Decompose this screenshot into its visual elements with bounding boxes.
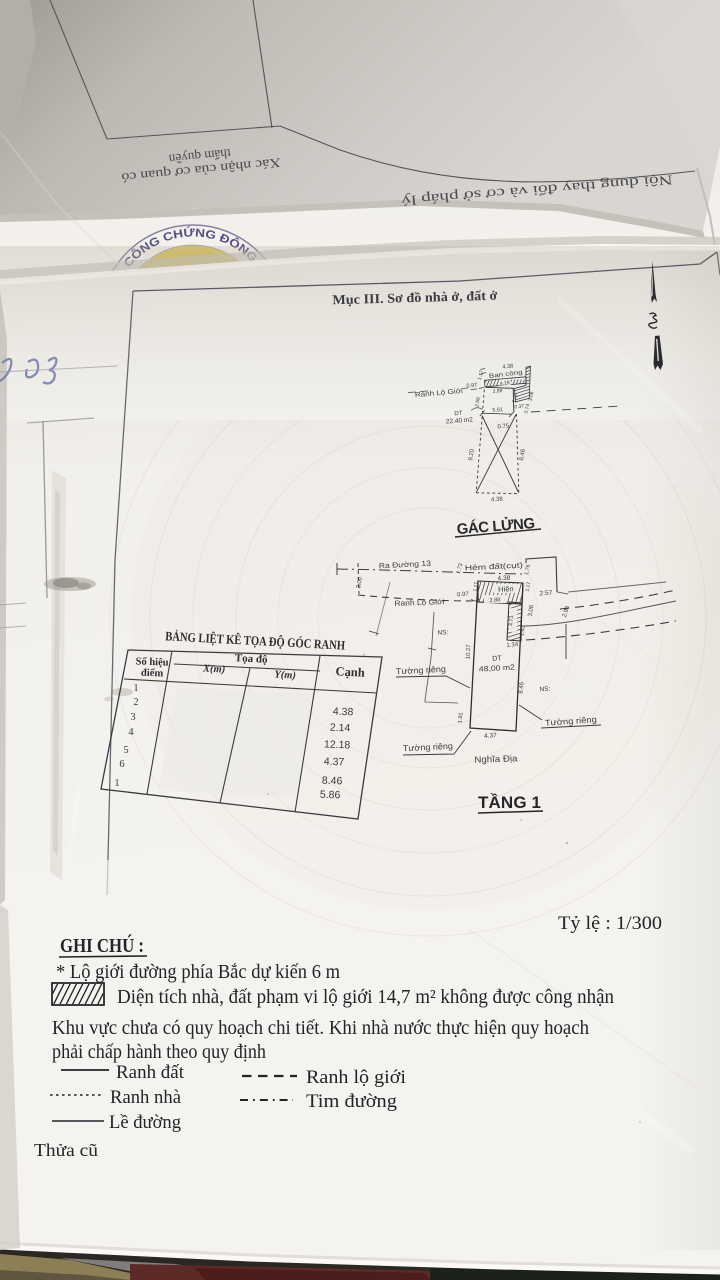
svg-text:Tỷ lệ : 1/300: Tỷ lệ : 1/300	[558, 913, 662, 934]
svg-text:Nghĩa Địa: Nghĩa Địa	[474, 753, 517, 764]
svg-text:2.14: 2.14	[330, 722, 351, 735]
svg-text:4.38: 4.38	[333, 706, 354, 719]
svg-text:Khu vực chưa có quy hoạch chi: Khu vực chưa có quy hoạch chi tiết. Khi …	[52, 1018, 589, 1039]
svg-text:4.37: 4.37	[484, 732, 497, 740]
svg-text:4.38: 4.38	[491, 497, 504, 504]
svg-text:Hiên: Hiên	[498, 584, 514, 594]
svg-text:4.38: 4.38	[497, 575, 510, 583]
svg-text:Lề đường: Lề đường	[109, 1112, 181, 1133]
svg-text:DT: DT	[492, 655, 502, 663]
svg-text:Cạnh: Cạnh	[335, 664, 365, 680]
svg-text:2.57: 2.57	[539, 590, 552, 598]
svg-text:2: 2	[133, 697, 138, 708]
svg-text:Diện tích nhà, đất phạm vi lộ: Diện tích nhà, đất phạm vi lộ giới 14,7 …	[117, 987, 614, 1008]
svg-text:Y(m): Y(m)	[274, 669, 296, 681]
svg-text:48,00 m2: 48,00 m2	[479, 663, 515, 674]
svg-text:0.97: 0.97	[466, 383, 477, 390]
svg-text:Ranh đất: Ranh đất	[116, 1062, 185, 1083]
svg-text:Tim đường: Tim đường	[306, 1091, 398, 1112]
svg-text:X(m): X(m)	[202, 663, 226, 675]
svg-text:Ranh nhà: Ranh nhà	[110, 1087, 182, 1108]
svg-text:1.91: 1.91	[458, 712, 465, 723]
svg-text:GHI CHÚ :: GHI CHÚ :	[60, 933, 144, 957]
svg-text:2.88: 2.88	[492, 388, 503, 395]
svg-text:3: 3	[130, 712, 135, 723]
svg-text:5: 5	[123, 745, 128, 756]
svg-text:6: 6	[119, 759, 124, 770]
svg-text:Thửa cũ: Thửa cũ	[34, 1140, 98, 1160]
svg-text:4.37: 4.37	[324, 756, 345, 769]
svg-text:12.18: 12.18	[324, 739, 351, 752]
svg-text:phải chấp hành theo quy định: phải chấp hành theo quy định	[52, 1042, 266, 1063]
svg-text:* Lộ giới đường phía Bắc dự ki: * Lộ giới đường phía Bắc dự kiến 6 m	[56, 962, 340, 983]
svg-text:Tọa độ: Tọa độ	[235, 652, 269, 666]
svg-text:điểm: điểm	[141, 668, 164, 680]
svg-text:DT: DT	[454, 411, 463, 418]
svg-text:4: 4	[128, 727, 134, 738]
svg-text:0.97: 0.97	[457, 592, 470, 599]
svg-text:8.46: 8.46	[518, 681, 525, 694]
svg-text:5.61: 5.61	[492, 407, 503, 414]
svg-text:8.46: 8.46	[322, 775, 343, 788]
svg-text:Ranh Lộ Giới: Ranh Lộ Giới	[394, 597, 445, 608]
svg-text:Ranh lộ giới: Ranh lộ giới	[306, 1067, 406, 1088]
svg-text:2.88: 2.88	[489, 597, 500, 604]
svg-text:NS:: NS:	[539, 686, 550, 694]
svg-text:1: 1	[114, 778, 119, 789]
svg-text:1: 1	[133, 683, 138, 694]
svg-text:10.27: 10.27	[465, 644, 472, 660]
svg-text:5.86: 5.86	[320, 789, 341, 802]
svg-text:TẦNG 1: TẦNG 1	[478, 793, 542, 812]
svg-text:4.19: 4.19	[500, 380, 511, 387]
svg-text:1.34: 1.34	[506, 642, 519, 649]
svg-text:NS:: NS:	[437, 629, 448, 637]
